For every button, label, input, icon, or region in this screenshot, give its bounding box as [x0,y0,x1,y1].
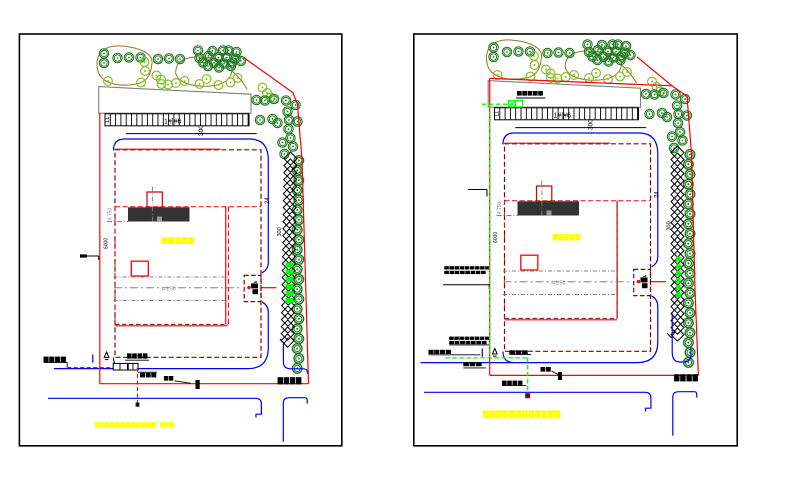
svg-text:i=1.50: i=1.50 [162,287,176,293]
svg-text:6000: 6000 [104,238,110,249]
svg-text:24: 24 [265,197,271,204]
svg-text:300: 300 [277,227,283,236]
svg-text:24: 24 [655,191,661,198]
svg-text:14.750: 14.750 [497,201,503,217]
svg-text:1#|#6: 1#|#6 [164,119,181,126]
svg-text:i=1.50: i=1.50 [552,281,566,287]
svg-text:11: 11 [495,110,501,117]
svg-text:1#|#6: 1#|#6 [554,113,571,120]
svg-text:11: 11 [105,116,111,123]
svg-text:14.750: 14.750 [108,207,114,223]
svg-text:300: 300 [588,119,595,130]
svg-text:6000: 6000 [493,232,499,243]
svg-text:300: 300 [198,125,205,136]
